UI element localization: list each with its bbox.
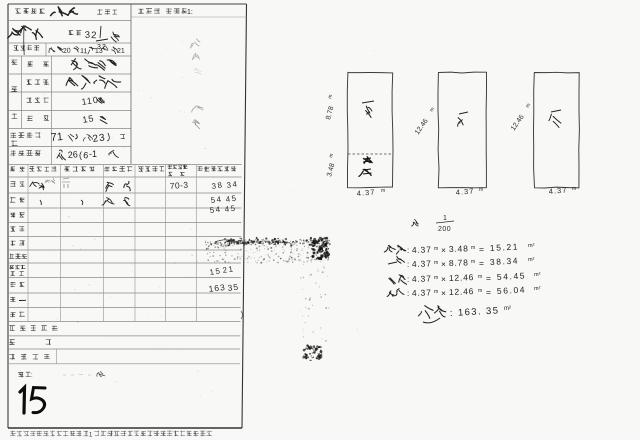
- svg-text:4.37: 4.37: [412, 258, 432, 269]
- svg-text:71: 71: [50, 131, 63, 144]
- svg-text:3.48: 3.48: [449, 243, 469, 254]
- svg-text:54: 54: [210, 195, 223, 205]
- svg-text:35: 35: [227, 282, 240, 293]
- svg-text:×: ×: [441, 259, 446, 269]
- svg-text:=: =: [486, 287, 491, 297]
- svg-text:m²: m²: [534, 272, 541, 278]
- svg-text:m: m: [434, 275, 438, 281]
- svg-text:m²: m²: [534, 286, 541, 292]
- svg-text:m: m: [478, 274, 482, 280]
- svg-text:=: =: [479, 258, 484, 268]
- svg-text:12.46: 12.46: [449, 272, 475, 283]
- svg-text:m: m: [434, 246, 438, 252]
- svg-text::: :: [407, 275, 409, 284]
- svg-text:2: 2: [91, 30, 97, 41]
- svg-text:4.37: 4.37: [356, 187, 375, 198]
- svg-text:m: m: [381, 188, 385, 194]
- svg-text::: :: [407, 289, 409, 298]
- svg-text:8.78: 8.78: [449, 257, 469, 268]
- svg-text:6: 6: [83, 150, 89, 160]
- svg-text:=: =: [479, 244, 484, 254]
- svg-text:m: m: [434, 289, 438, 295]
- svg-text:=: =: [486, 273, 491, 283]
- svg-text:38: 38: [211, 180, 224, 191]
- svg-text:m: m: [478, 288, 482, 294]
- svg-text:15.21: 15.21: [490, 241, 520, 253]
- svg-text:m: m: [471, 259, 475, 265]
- svg-text:34: 34: [226, 179, 239, 190]
- svg-text:1:: 1:: [187, 9, 193, 16]
- svg-text:4.37: 4.37: [412, 273, 432, 284]
- svg-text:m: m: [572, 186, 576, 192]
- svg-text:54.45: 54.45: [497, 270, 527, 282]
- svg-text:21: 21: [117, 48, 125, 55]
- svg-text:12.46: 12.46: [449, 286, 475, 297]
- svg-text:163: 163: [208, 282, 226, 294]
- svg-text:×: ×: [441, 288, 446, 298]
- svg-text:4.37: 4.37: [412, 287, 432, 298]
- svg-text:m: m: [471, 245, 475, 251]
- svg-text:4.37: 4.37: [455, 186, 474, 197]
- svg-text:20: 20: [63, 48, 71, 55]
- svg-text:11: 11: [80, 48, 88, 55]
- svg-text:38.34: 38.34: [490, 255, 520, 267]
- svg-text:m²: m²: [528, 257, 535, 263]
- svg-text:4.37: 4.37: [412, 244, 432, 255]
- svg-text::: :: [407, 246, 409, 255]
- svg-text:4.37: 4.37: [548, 185, 567, 196]
- svg-text:×: ×: [441, 274, 446, 284]
- svg-text::: :: [407, 260, 409, 269]
- svg-text:m: m: [434, 260, 438, 266]
- svg-text:×: ×: [441, 245, 446, 255]
- svg-text:15: 15: [209, 266, 222, 277]
- svg-text:(: (: [79, 150, 82, 160]
- svg-text:26: 26: [67, 149, 78, 160]
- svg-text:54: 54: [209, 205, 222, 215]
- svg-text:56.04: 56.04: [497, 284, 527, 296]
- svg-text:3: 3: [84, 30, 90, 41]
- svg-text:200: 200: [438, 226, 451, 233]
- svg-text:15: 15: [82, 113, 96, 125]
- svg-text:45: 45: [224, 204, 237, 214]
- svg-text:1: 1: [443, 215, 447, 222]
- svg-text:21: 21: [222, 264, 235, 275]
- svg-text:23: 23: [92, 132, 107, 145]
- svg-text:70-3: 70-3: [169, 180, 188, 191]
- svg-text:m: m: [479, 187, 483, 193]
- svg-text:45: 45: [225, 194, 238, 204]
- svg-text:m²: m²: [504, 306, 511, 312]
- svg-text:m²: m²: [528, 243, 535, 249]
- svg-text:-1: -1: [89, 149, 97, 159]
